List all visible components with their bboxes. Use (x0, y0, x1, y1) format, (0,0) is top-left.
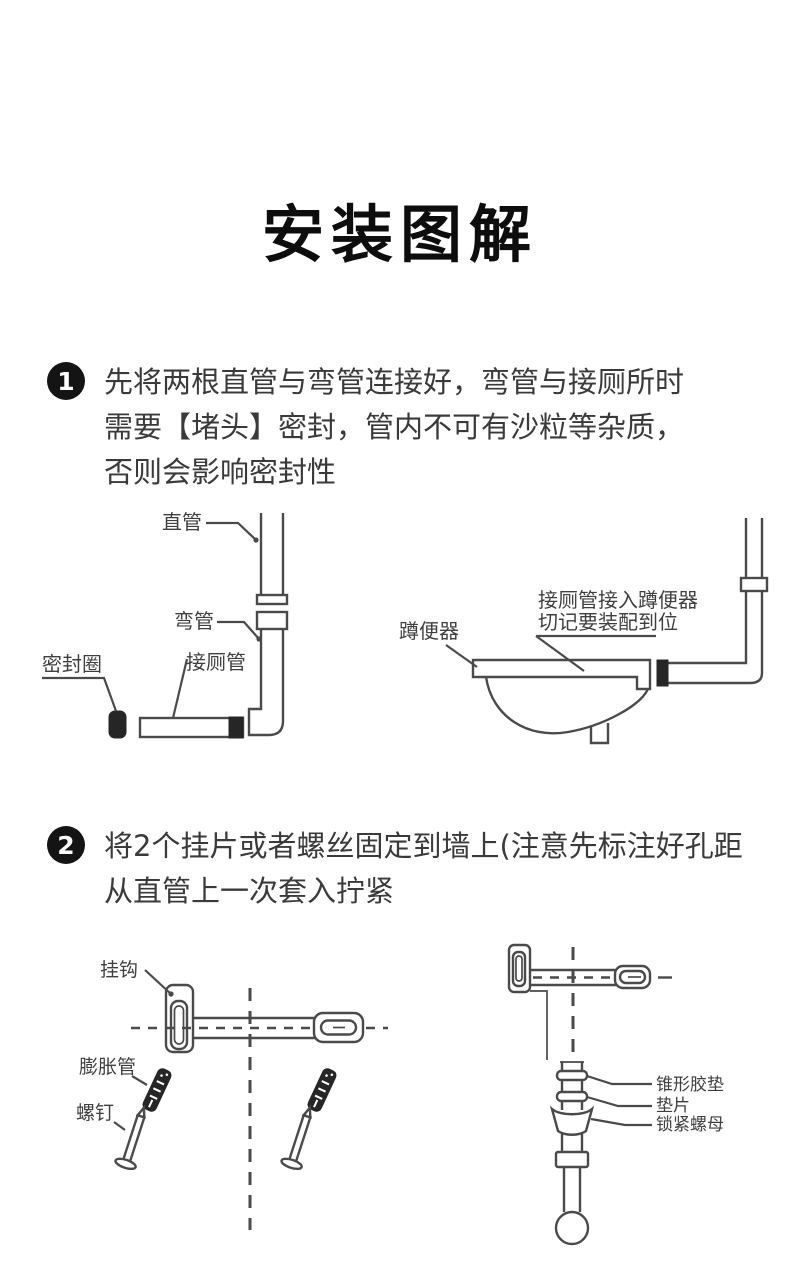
leader-dot (256, 636, 261, 641)
squat-pan-slab (473, 660, 650, 689)
toilet-pipe-leader (173, 659, 187, 718)
toilet-pipe-cap (229, 717, 243, 738)
step-2-line-2: 从直管上一次套入拧紧 (104, 869, 743, 914)
leader-dot (253, 537, 258, 542)
screw-leader (114, 1122, 125, 1130)
cone-rubber-pad-shape (557, 1071, 587, 1080)
pipe-assembly-left: 直管 弯管 密封圈 接厕管 (42, 510, 287, 738)
straight-pipe-leader (206, 523, 256, 540)
screw-shaft (289, 1115, 310, 1163)
washer-shape (557, 1092, 587, 1101)
squat-pan-bowl (486, 677, 648, 733)
step-1-text: 先将两根直管与弯管连接好，弯管与接厕所时 需要【堵头】密封，管内不可有沙粒等杂质… (104, 360, 684, 495)
screw-label: 螺钉 (76, 1102, 114, 1124)
toilet-pipe-label: 接厕管 (186, 650, 246, 674)
toilet-pipe-shape (140, 718, 243, 737)
cone-rubber-pad-label: 锥形胶垫 (656, 1075, 724, 1095)
seal-ring-label: 密封圈 (42, 652, 102, 676)
squat-pan-leader (446, 645, 477, 667)
note-line-1: 接厕管接入蹲便器 (538, 588, 698, 612)
screw-head (280, 1157, 302, 1171)
nut-stack-diagram: 锥形胶垫 垫片 锁紧螺母 (509, 945, 724, 1244)
offset-reference-line (530, 991, 547, 1060)
step-2-number: 2 (57, 831, 74, 860)
screw-right (280, 1104, 319, 1170)
hook-leader (145, 970, 171, 994)
expansion-tube-label: 膨胀管 (79, 1056, 136, 1078)
seal-ring-leader (42, 678, 116, 711)
step-1-number: 1 (57, 367, 74, 396)
step-1-line-1: 先将两根直管与弯管连接好，弯管与接厕所时 (104, 360, 684, 405)
step-1-section: 1 先将两根直管与弯管连接好，弯管与接厕所时 需要【堵头】密封，管内不可有沙粒等… (47, 360, 684, 495)
step-1-line-2: 需要【堵头】密封，管内不可有沙粒等杂质， (104, 405, 684, 450)
step-2-section: 2 将2个挂片或者螺丝固定到墙上(注意先标注好孔距 从直管上一次套入拧紧 (47, 824, 743, 914)
right-pipe-coupling (741, 578, 767, 591)
washer-label: 垫片 (656, 1096, 690, 1116)
leader-dot (168, 991, 173, 996)
straight-pipe-label: 直管 (162, 510, 202, 534)
elbow-pipe-label: 弯管 (174, 609, 214, 633)
page-title: 安装图解 (0, 184, 800, 274)
expansion-anchor-right (306, 1067, 337, 1113)
pipe-coupling (556, 1152, 588, 1167)
step-2-line-1: 将2个挂片或者螺丝固定到墙上(注意先标注好孔距 (104, 824, 743, 869)
expansion-anchor-left (141, 1067, 172, 1113)
screw-head (114, 1157, 136, 1171)
squat-pan-assembly: 蹲便器 接厕管接入蹲便器 切记要装配到位 (399, 518, 767, 743)
pipe-lower-segment (564, 1167, 580, 1212)
pipe-ball-end (556, 1212, 588, 1244)
elbow-pipe-body (261, 629, 283, 695)
step-2-badge: 2 (47, 826, 85, 864)
lock-nut-shape (552, 1109, 592, 1135)
step-1-diagram: 直管 弯管 密封圈 接厕管 蹲便器 接厕管接入蹲便器 切记要装配到位 (0, 495, 800, 780)
hook-label: 挂钩 (100, 959, 138, 981)
elbow-pipe-socket (257, 612, 287, 629)
washer-leader (587, 1097, 652, 1106)
step-1-badge: 1 (47, 362, 85, 400)
note-line-2: 切记要装配到位 (538, 610, 678, 634)
elbow-pipe-leader (217, 622, 259, 639)
seal-ring-shape (109, 711, 126, 738)
step-2-text: 将2个挂片或者螺丝固定到墙上(注意先标注好孔距 从直管上一次套入拧紧 (104, 824, 743, 914)
pipe-joint-collar (257, 595, 287, 604)
straight-pipe-shape (261, 513, 283, 595)
lock-nut-leader (591, 1119, 652, 1125)
screw-shaft (123, 1115, 144, 1163)
lock-nut-label: 锁紧螺母 (656, 1115, 724, 1135)
step-2-diagram: 挂钩 膨胀管 螺钉 (0, 930, 800, 1260)
installation-guide-page: 安装图解 1 先将两根直管与弯管连接好，弯管与接厕所时 需要【堵头】密封，管内不… (0, 0, 800, 1263)
cone-rubber-pad-leader (587, 1076, 652, 1084)
squat-pan-label: 蹲便器 (399, 619, 459, 643)
right-pipe-cap (657, 660, 668, 686)
elbow-bend-shape (249, 695, 283, 735)
step-1-line-3: 否则会影响密封性 (104, 450, 684, 495)
screw-left (114, 1104, 153, 1170)
hook-mounting-diagram: 挂钩 膨胀管 螺钉 (76, 959, 388, 1230)
